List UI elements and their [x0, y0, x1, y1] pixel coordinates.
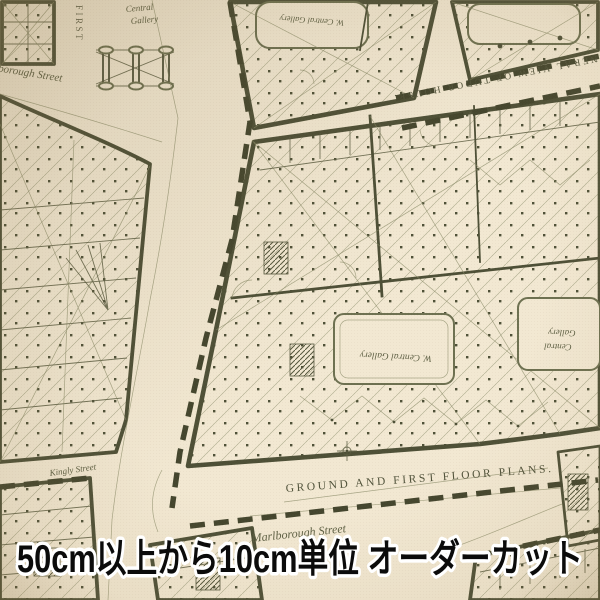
map-print: FIRST Marlborough Street Central Gallery…: [0, 0, 600, 600]
order-cut-caption: 50cm以上から10cm単位 オーダーカット: [17, 538, 583, 581]
corner-shading: [0, 0, 600, 600]
fabric-product-image: FIRST Marlborough Street Central Gallery…: [0, 0, 600, 600]
